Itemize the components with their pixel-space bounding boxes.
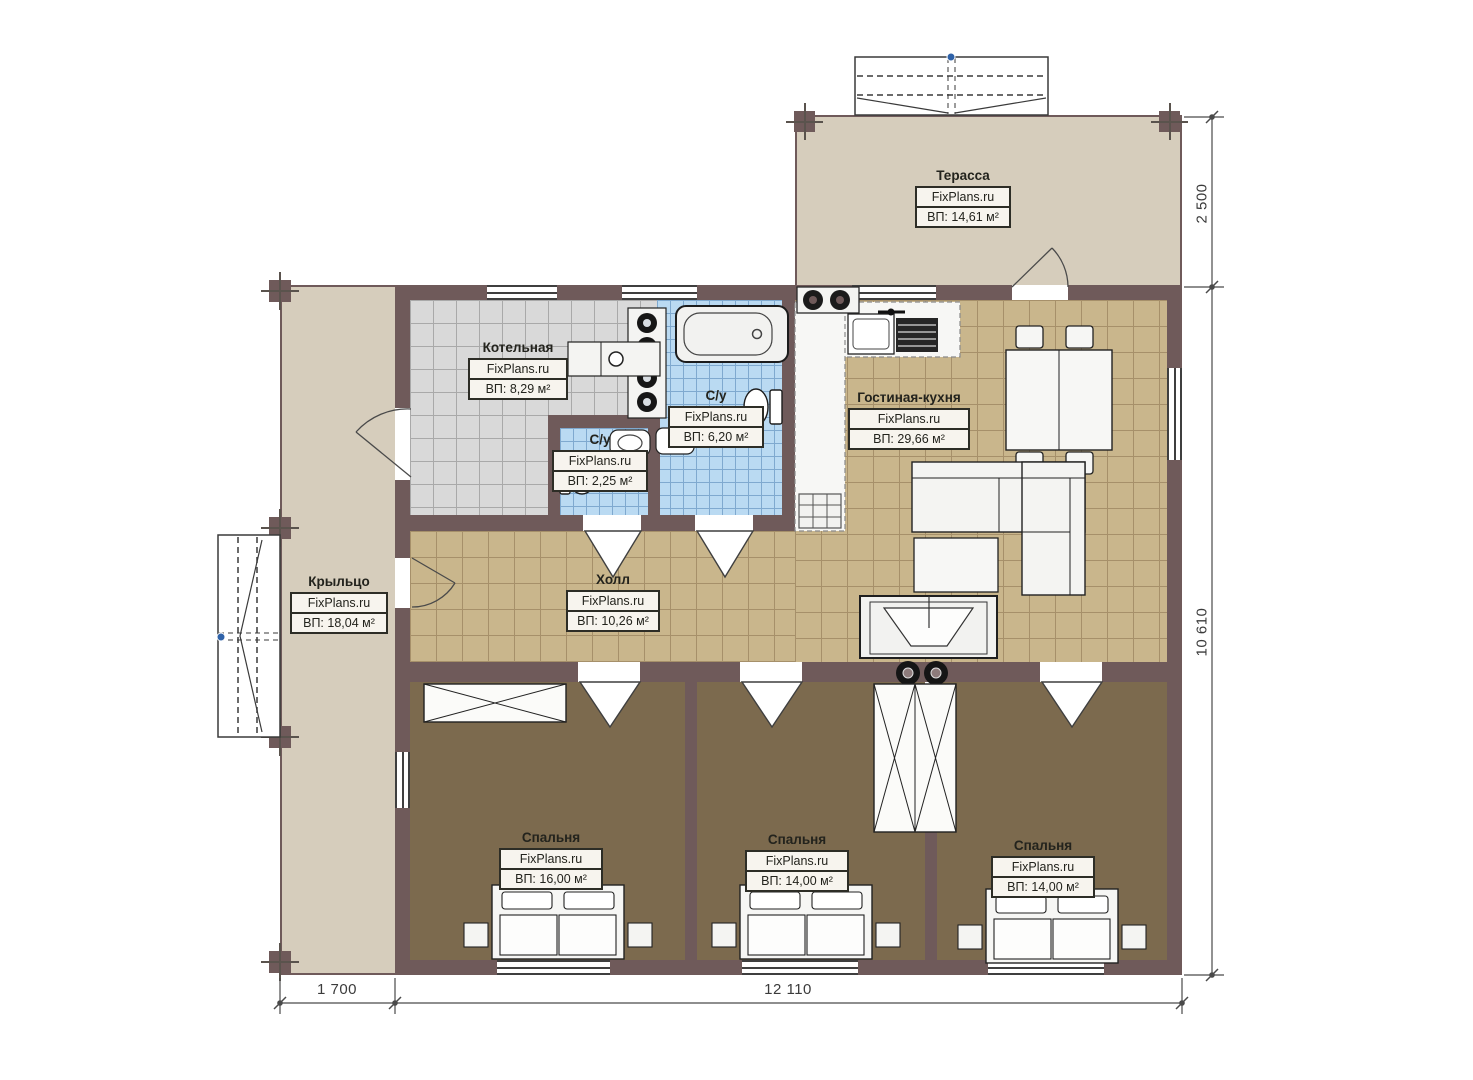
bedroom-1-floor [410, 682, 685, 960]
door-opening-bath-small [583, 515, 641, 531]
wall-left [395, 285, 410, 975]
brand-text: FixPlans.ru [292, 594, 386, 614]
window-bedroom-3 [988, 960, 1104, 975]
room-label-hall: Холл FixPlans.ru ВП: 10,26 м² [566, 572, 660, 632]
brand-text: FixPlans.ru [670, 408, 762, 428]
room-area: ВП: 14,00 м² [747, 872, 847, 890]
floor-plan: Терасса FixPlans.ru ВП: 14,61 м² Котельн… [0, 0, 1473, 1080]
room-name: Спальня [499, 830, 603, 845]
porch-post [269, 517, 291, 539]
brand-text: FixPlans.ru [568, 592, 658, 612]
wall-bath-kitchen [782, 285, 795, 531]
room-area: ВП: 14,00 м² [993, 878, 1093, 896]
room-name: Гостиная-кухня [848, 390, 970, 405]
room-name: Спальня [991, 838, 1095, 853]
window-bedroom-1 [497, 960, 610, 975]
porch-steps [217, 535, 280, 737]
door-opening-terrace [1012, 285, 1068, 300]
room-area: ВП: 10,26 м² [568, 612, 658, 630]
room-area: ВП: 6,20 м² [670, 428, 762, 446]
brand-text: FixPlans.ru [501, 850, 601, 870]
room-area: ВП: 16,00 м² [501, 870, 601, 888]
wall-bedroom-2-3 [925, 832, 937, 960]
living-kitchen-floor [795, 300, 1167, 662]
room-label-porch: Крыльцо FixPlans.ru ВП: 18,04 м² [290, 574, 388, 634]
room-area: ВП: 18,04 м² [292, 614, 386, 632]
window-bedroom-1-side [395, 752, 410, 808]
window-kitchen [852, 285, 936, 300]
room-name: С/у [668, 388, 764, 403]
terrace-steps [855, 53, 1048, 115]
room-name: Котельная [468, 340, 568, 355]
room-name: С/у [552, 432, 648, 447]
wall-bedroom-1-2 [685, 682, 697, 960]
room-label-bedroom-2: Спальня FixPlans.ru ВП: 14,00 м² [745, 832, 849, 892]
door-opening-hall-porch [395, 558, 410, 608]
room-label-bath-small: С/у FixPlans.ru ВП: 2,25 м² [552, 432, 648, 492]
room-label-bedroom-3: Спальня FixPlans.ru ВП: 14,00 м² [991, 838, 1095, 898]
room-label-bedroom-1: Спальня FixPlans.ru ВП: 16,00 м² [499, 830, 603, 890]
room-area: ВП: 8,29 м² [470, 380, 566, 398]
wall-bath-small-right [648, 415, 660, 531]
brand-text: FixPlans.ru [554, 452, 646, 472]
dimension-bottom-left: 1 700 [307, 981, 367, 998]
wall-bath-small-top [548, 415, 660, 428]
window-bedroom-2 [742, 960, 858, 975]
room-name: Холл [566, 572, 660, 587]
room-area: ВП: 14,61 м² [917, 208, 1009, 226]
door-opening-bath-large [695, 515, 753, 531]
window-bath [622, 285, 697, 300]
room-area: ВП: 2,25 м² [554, 472, 646, 490]
brand-text: FixPlans.ru [470, 360, 566, 380]
window-living [1167, 368, 1182, 460]
dimension-right-top: 2 500 [1194, 180, 1211, 228]
brand-text: FixPlans.ru [993, 858, 1093, 878]
brand-text: FixPlans.ru [917, 188, 1009, 208]
bedroom-3-floor [937, 682, 1167, 960]
porch-post [269, 280, 291, 302]
door-opening-bedroom-2 [740, 662, 802, 682]
room-name: Крыльцо [290, 574, 388, 589]
porch-post [269, 726, 291, 748]
room-name: Спальня [745, 832, 849, 847]
door-opening-entrance [395, 408, 410, 480]
room-label-boiler: Котельная FixPlans.ru ВП: 8,29 м² [468, 340, 568, 400]
dimension-right-main: 10 610 [1194, 609, 1211, 657]
door-opening-bedroom-1 [578, 662, 640, 682]
door-opening-bedroom-3 [1040, 662, 1102, 682]
dimension-bottom-main: 12 110 [756, 981, 820, 998]
room-name: Терасса [915, 168, 1011, 183]
room-label-bath-large: С/у FixPlans.ru ВП: 6,20 м² [668, 388, 764, 448]
terrace-post [794, 111, 815, 132]
porch-post [269, 951, 291, 973]
brand-text: FixPlans.ru [747, 852, 847, 872]
bedroom-2-floor [697, 682, 925, 960]
room-label-living-kitchen: Гостиная-кухня FixPlans.ru ВП: 29,66 м² [848, 390, 970, 450]
window-boiler [487, 285, 557, 300]
room-label-terrace: Терасса FixPlans.ru ВП: 14,61 м² [915, 168, 1011, 228]
brand-text: FixPlans.ru [850, 410, 968, 430]
room-area: ВП: 29,66 м² [850, 430, 968, 448]
terrace-post [1159, 111, 1180, 132]
